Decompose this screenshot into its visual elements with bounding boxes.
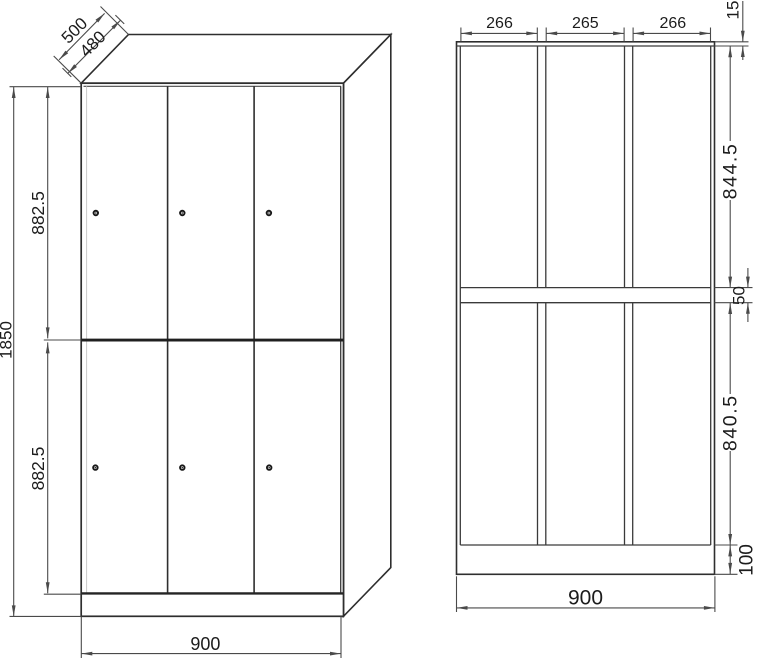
svg-text:100: 100 — [736, 544, 757, 576]
svg-text:15: 15 — [723, 1, 742, 20]
svg-text:900: 900 — [190, 634, 220, 654]
svg-text:882.5: 882.5 — [28, 191, 48, 235]
svg-text:265: 265 — [572, 15, 599, 32]
svg-text:266: 266 — [486, 15, 513, 32]
svg-text:50: 50 — [729, 286, 748, 305]
svg-text:844.5: 844.5 — [720, 143, 742, 200]
svg-text:882.5: 882.5 — [28, 447, 48, 491]
svg-text:266: 266 — [659, 15, 686, 32]
svg-text:900: 900 — [568, 587, 603, 610]
svg-text:840.5: 840.5 — [720, 394, 742, 451]
svg-text:1850: 1850 — [0, 321, 15, 359]
